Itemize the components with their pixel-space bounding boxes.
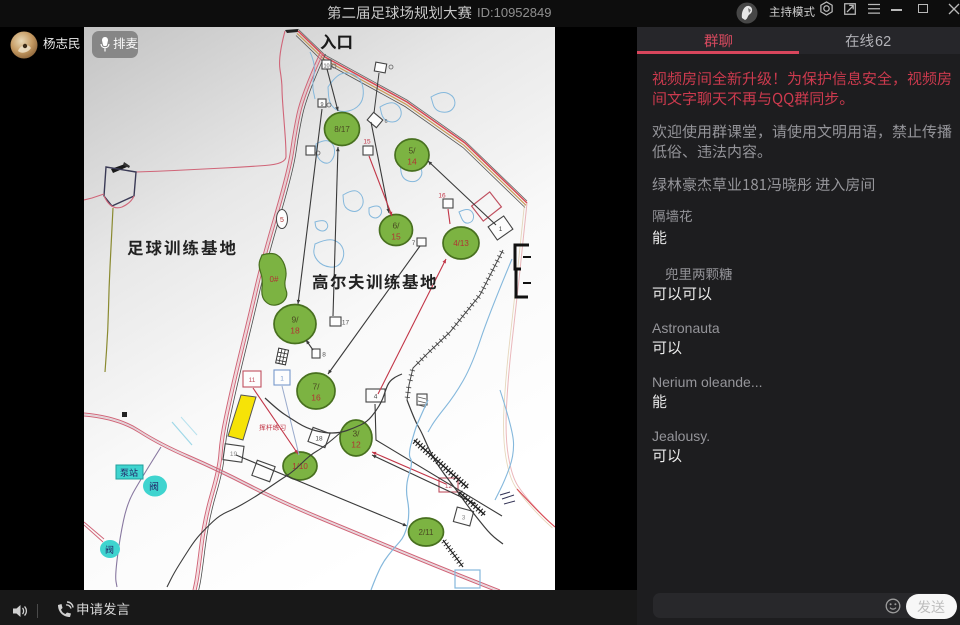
- svg-text:17: 17: [342, 320, 350, 327]
- svg-text:6: 6: [384, 119, 387, 125]
- svg-text:5: 5: [280, 217, 284, 224]
- svg-text:6/: 6/: [392, 221, 400, 231]
- svg-text:3/: 3/: [352, 429, 360, 439]
- svg-text:15: 15: [363, 139, 371, 146]
- svg-text:4/13: 4/13: [453, 239, 469, 248]
- svg-text:4: 4: [374, 394, 378, 401]
- svg-text:18: 18: [290, 326, 300, 336]
- svg-text:18: 18: [315, 436, 323, 443]
- svg-text:16: 16: [438, 193, 446, 200]
- svg-text:1: 1: [499, 226, 503, 233]
- svg-text:19: 19: [230, 451, 238, 458]
- svg-text:16: 16: [311, 393, 321, 403]
- svg-text:5/: 5/: [408, 146, 416, 156]
- svg-text:14: 14: [407, 157, 417, 167]
- svg-text:1: 1: [280, 376, 284, 383]
- svg-text:8: 8: [322, 352, 326, 359]
- svg-text:7/: 7/: [312, 382, 320, 392]
- svg-text:0#: 0#: [270, 275, 279, 284]
- svg-text:11: 11: [249, 377, 256, 384]
- svg-text:15: 15: [391, 232, 401, 242]
- svg-text:10: 10: [323, 64, 329, 70]
- svg-text:8/17: 8/17: [334, 125, 350, 134]
- svg-text:9: 9: [320, 102, 323, 108]
- svg-text:3: 3: [462, 515, 466, 522]
- svg-text:12: 12: [351, 440, 361, 450]
- svg-text:7: 7: [412, 240, 416, 247]
- svg-text:9/: 9/: [291, 315, 299, 325]
- svg-text:2/11: 2/11: [419, 528, 435, 537]
